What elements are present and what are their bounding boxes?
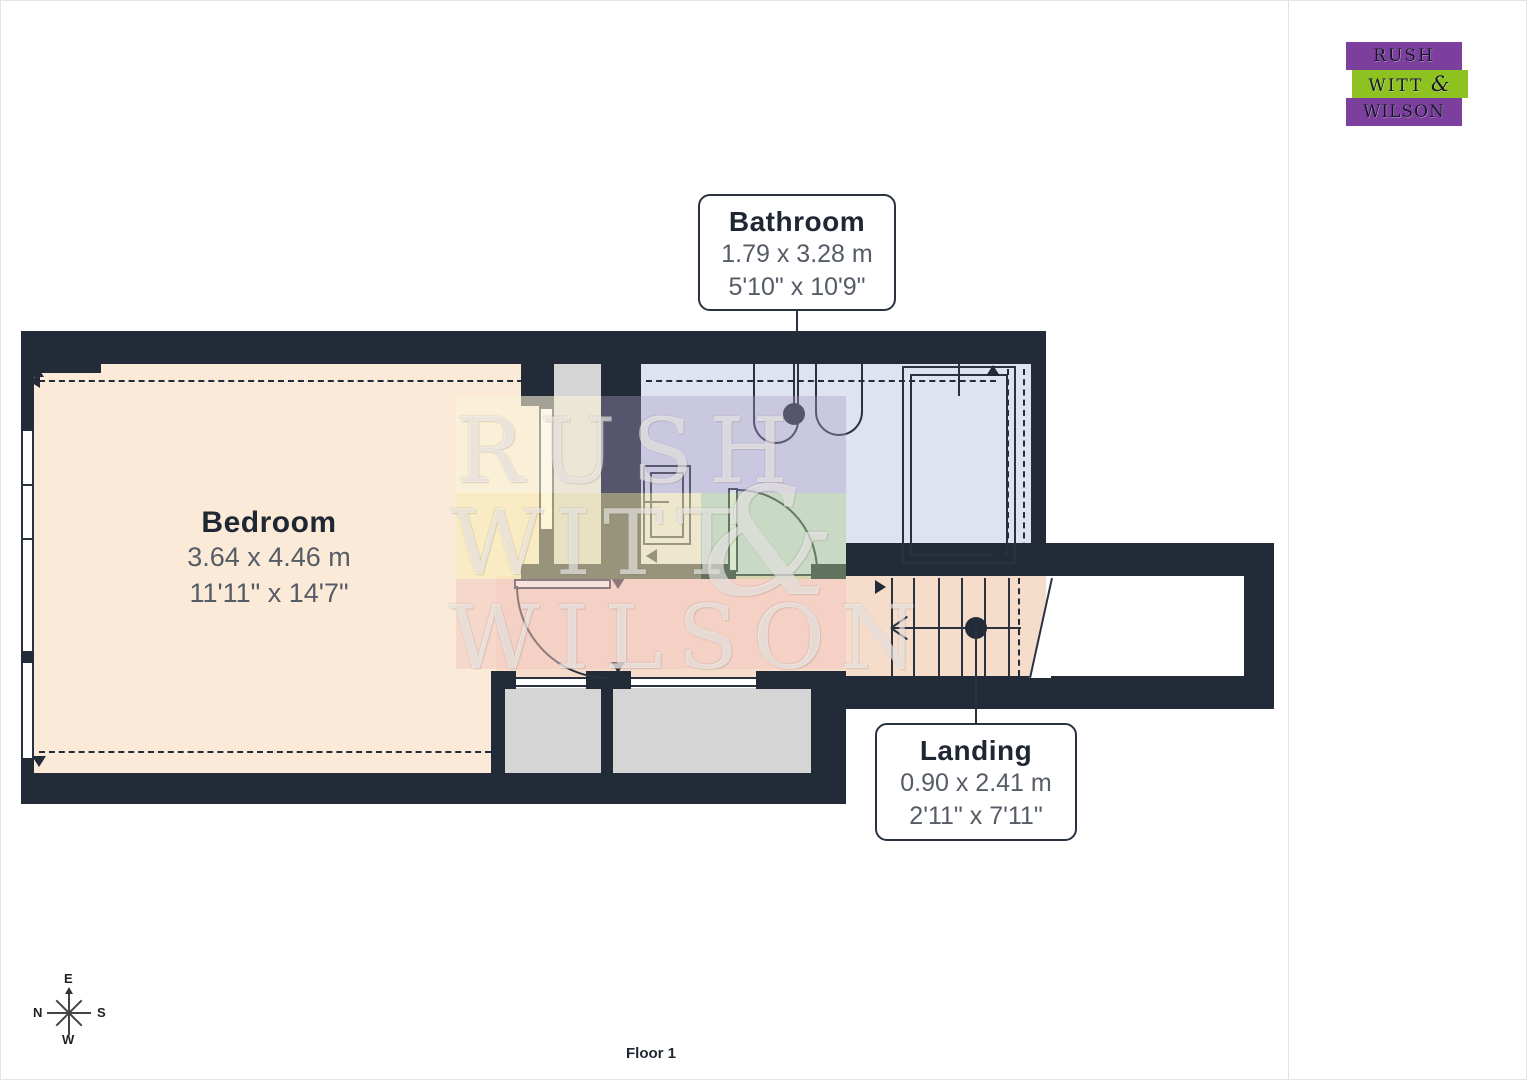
logo-ampersand: & xyxy=(1431,72,1452,96)
room-dimensions-imperial: 11'11" x 14'7" xyxy=(119,576,419,612)
floor-title: Floor 1 xyxy=(571,1045,731,1062)
floor-plan: RUSH WITT & WILSON Bathroom 1.79 x 3.28 … xyxy=(1,1,1288,1080)
landing-leader-line xyxy=(975,628,977,724)
logo-bar-wilson: WILSON xyxy=(1346,98,1462,126)
room-name: Bathroom xyxy=(700,206,894,238)
stair-void xyxy=(1046,578,1244,676)
reduced-headroom-line xyxy=(39,380,533,382)
headroom-arrow-icon xyxy=(32,756,46,767)
shower-tray xyxy=(910,374,1008,556)
logo-bar-rush: RUSH xyxy=(1346,42,1462,70)
room-dimensions-imperial: 2'11" x 7'11" xyxy=(877,800,1075,833)
window-mullion xyxy=(21,538,34,540)
room-label-landing: Landing 0.90 x 2.41 m 2'11" x 7'11" xyxy=(875,723,1077,841)
headroom-arrow-icon xyxy=(522,374,533,388)
wall-segment xyxy=(491,678,505,774)
wall-segment xyxy=(21,651,34,663)
watermark-text: RUSH xyxy=(456,399,716,504)
window xyxy=(21,431,34,651)
compass-s: S xyxy=(97,1005,106,1020)
reduced-headroom-line xyxy=(39,751,491,753)
room-dimensions-metric: 1.79 x 3.28 m xyxy=(700,238,894,271)
watermark-text: WITT xyxy=(451,491,711,596)
reduced-headroom-line xyxy=(1023,369,1025,559)
compass-n: N xyxy=(33,1005,42,1020)
void-room-floor xyxy=(613,688,811,774)
floorplan-page: RUSH WITT & WILSON Bathroom 1.79 x 3.28 … xyxy=(0,0,1527,1080)
headroom-arrow-icon xyxy=(994,548,1005,562)
reduced-headroom-line xyxy=(646,380,996,382)
wall-segment xyxy=(21,773,846,804)
window-mullion xyxy=(21,484,34,486)
room-dimensions-imperial: 5'10" x 10'9" xyxy=(700,271,894,304)
info-sidebar: RUSH WITT & WILSON Approximate total are… xyxy=(1288,1,1527,1080)
room-label-bathroom: Bathroom 1.79 x 3.28 m 5'10" x 10'9" xyxy=(698,194,896,311)
logo-bar-witt: WITT & xyxy=(1352,70,1468,98)
compass-e: E xyxy=(64,971,73,986)
bathroom-leader-line xyxy=(796,309,798,333)
headroom-arrow-icon xyxy=(986,365,1000,376)
reduced-headroom-line xyxy=(1007,369,1009,559)
headroom-arrow-icon xyxy=(29,374,40,388)
room-dimensions-metric: 3.64 x 4.46 m xyxy=(119,540,419,576)
wall-segment xyxy=(21,331,1046,364)
agency-logo: RUSH WITT & WILSON xyxy=(1289,1,1527,161)
room-name: Bedroom xyxy=(119,506,419,540)
wall-segment xyxy=(601,678,613,774)
watermark-text: WILSON xyxy=(449,586,849,689)
void-room-floor xyxy=(505,688,601,774)
compass-w: W xyxy=(62,1032,74,1047)
compass-icon: E N S W xyxy=(31,971,111,1051)
logo-word: WITT xyxy=(1368,76,1423,96)
window xyxy=(21,663,34,758)
room-label-bedroom: Bedroom 3.64 x 4.46 m 11'11" x 14'7" xyxy=(119,506,419,611)
room-name: Landing xyxy=(877,735,1075,767)
room-dimensions-metric: 0.90 x 2.41 m xyxy=(877,767,1075,800)
